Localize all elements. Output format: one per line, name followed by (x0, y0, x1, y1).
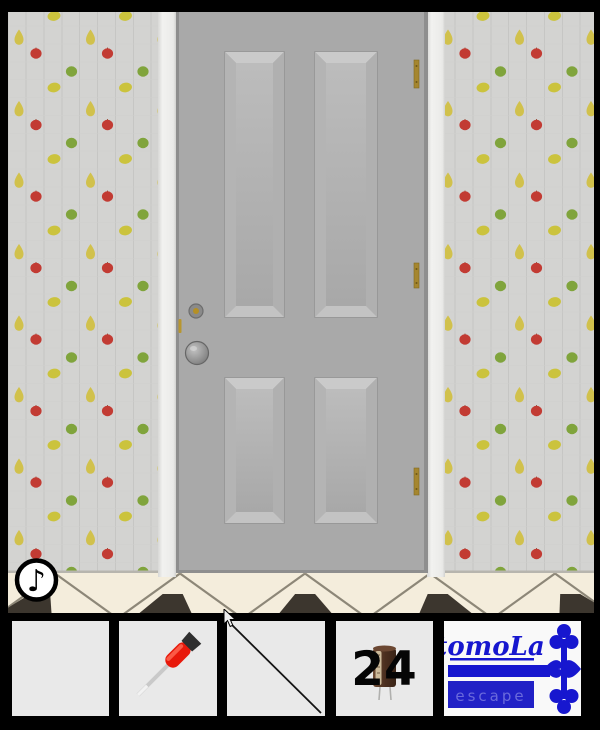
door-panel (315, 378, 377, 523)
right-wall[interactable] (444, 12, 594, 573)
door[interactable] (176, 12, 428, 573)
left-wall[interactable] (8, 12, 158, 573)
code-number-label: 24 (351, 642, 416, 697)
right-door-trim (427, 12, 445, 577)
inventory-slot-screwdriver[interactable] (119, 621, 217, 716)
mouse-cursor (223, 609, 239, 629)
inventory-slot-empty[interactable] (12, 621, 109, 716)
door-keyhole[interactable] (189, 304, 203, 318)
room-scene: ♪ (0, 0, 600, 620)
door-panel (225, 378, 284, 523)
left-door-trim (158, 12, 176, 577)
music-note-icon: ♪ (27, 564, 46, 599)
game-stage: ♪ (0, 0, 600, 730)
strike-plate (179, 319, 182, 333)
music-note-button[interactable]: ♪ (17, 561, 56, 600)
door-knob[interactable] (186, 342, 209, 365)
tomola-logo[interactable]: tomoLa escape (444, 621, 581, 716)
floor[interactable] (0, 573, 600, 620)
inventory-slot-capacitor[interactable]: 24 (336, 621, 433, 716)
door-panel (225, 52, 284, 317)
screwdriver-icon (119, 621, 217, 716)
thin-rod-icon (227, 621, 325, 716)
door-panel (315, 52, 377, 317)
inventory-slot-rod[interactable] (227, 621, 325, 716)
logo-title: tomoLa (444, 632, 545, 662)
logo-subtitle: escape (455, 687, 526, 705)
